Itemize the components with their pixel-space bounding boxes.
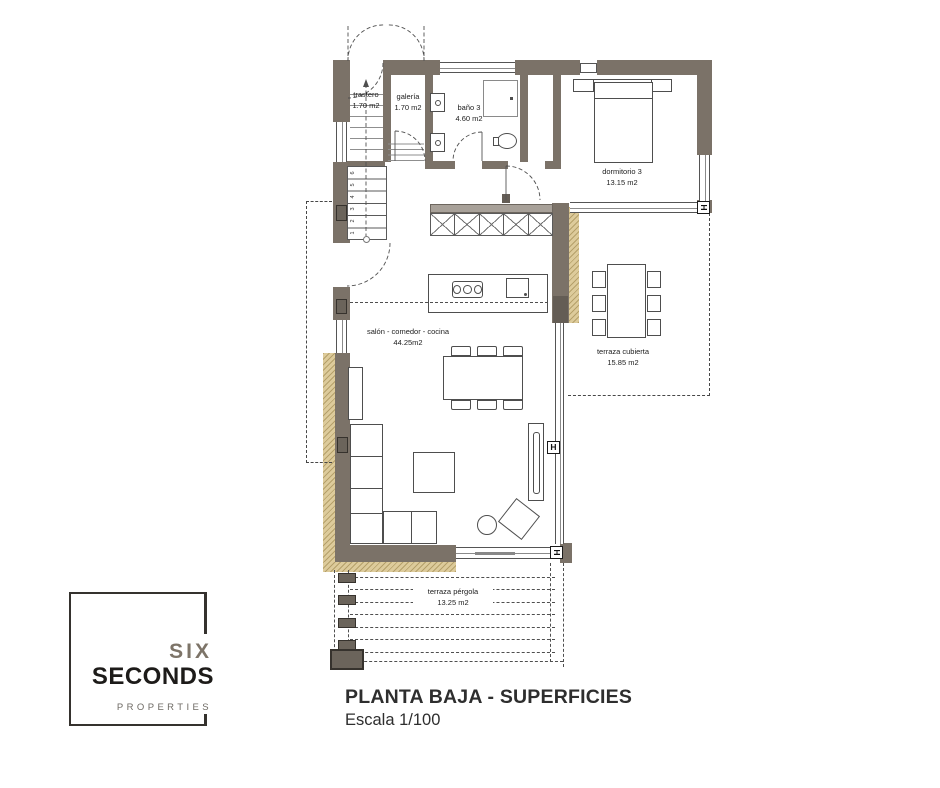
galeria-door-arc [395, 131, 425, 161]
hall-door-arc [506, 166, 540, 200]
entry-door-arc-right [388, 25, 424, 61]
window-handle-symbol: H [697, 201, 710, 214]
floor-plan-page: 1 2 3 4 5 6 [0, 0, 940, 788]
room-label-terraza-pergola: terraza pérgola 13.25 m2 [413, 587, 493, 608]
room-name: dormitorio 3 [582, 167, 662, 178]
room-area: 4.60 m2 [439, 114, 499, 125]
bano-door-arc [453, 132, 482, 161]
entry-door-arc-left [348, 25, 384, 61]
window-handle-symbol: H [550, 546, 563, 559]
room-name: terraza cubierta [583, 347, 663, 358]
room-label-salon: salón - comedor - cocina 44.25m2 [348, 327, 468, 348]
room-area: 44.25m2 [348, 338, 468, 349]
room-name: terraza pérgola [413, 587, 493, 598]
window-handle-symbol: H [547, 441, 560, 454]
room-name: baño 3 [439, 103, 499, 114]
logo-word-properties: PROPERTIES [82, 702, 212, 713]
room-name: galería [378, 92, 438, 103]
logo-word-six: SIX [100, 640, 212, 664]
room-area: 1.70 m2 [378, 103, 438, 114]
plan-scale: Escala 1/100 [345, 711, 440, 730]
room-label-galeria: galería 1.70 m2 [378, 92, 438, 113]
room-name: salón - comedor - cocina [348, 327, 468, 338]
logo-frame-right-bottom [204, 714, 207, 726]
main-entrance-arc [347, 243, 390, 286]
room-label-bano: baño 3 4.60 m2 [439, 103, 499, 124]
logo-frame-right-top [204, 592, 207, 634]
plan-title: PLANTA BAJA - SUPERFICIES [345, 686, 632, 709]
room-area: 13.25 m2 [413, 598, 493, 609]
stair-arrow-icon [363, 79, 369, 87]
room-area: 15.85 m2 [583, 358, 663, 369]
room-label-terraza-cubierta: terraza cubierta 15.85 m2 [583, 347, 663, 368]
logo-word-seconds: SECONDS [82, 663, 214, 691]
room-area: 13.15 m2 [582, 178, 662, 189]
room-label-dormitorio: dormitorio 3 13.15 m2 [582, 167, 662, 188]
